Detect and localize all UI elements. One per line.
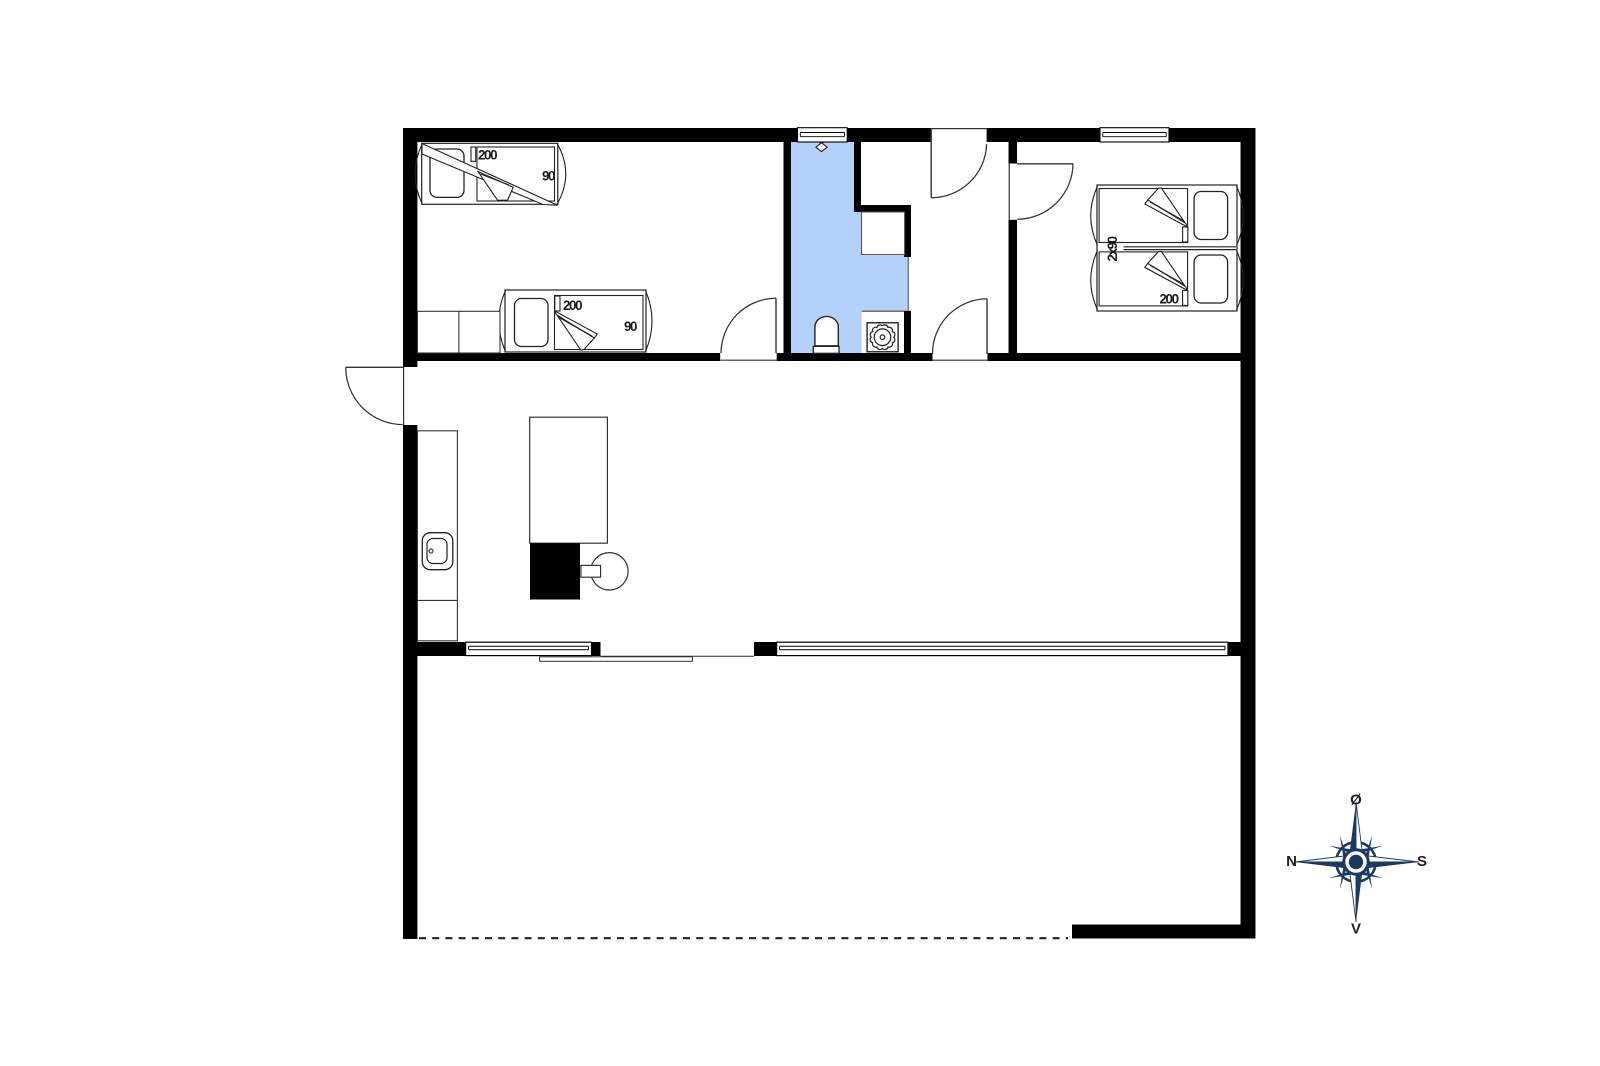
svg-text:90: 90 bbox=[542, 168, 555, 183]
svg-text:200: 200 bbox=[1160, 292, 1179, 307]
svg-text:Ø: Ø bbox=[1350, 792, 1362, 809]
svg-text:2x90: 2x90 bbox=[1105, 236, 1120, 261]
svg-text:V: V bbox=[1351, 921, 1361, 938]
svg-text:200: 200 bbox=[478, 148, 497, 163]
svg-text:90: 90 bbox=[624, 319, 637, 334]
svg-text:200: 200 bbox=[563, 298, 582, 313]
svg-text:S: S bbox=[1417, 853, 1427, 870]
svg-text:N: N bbox=[1286, 853, 1297, 870]
